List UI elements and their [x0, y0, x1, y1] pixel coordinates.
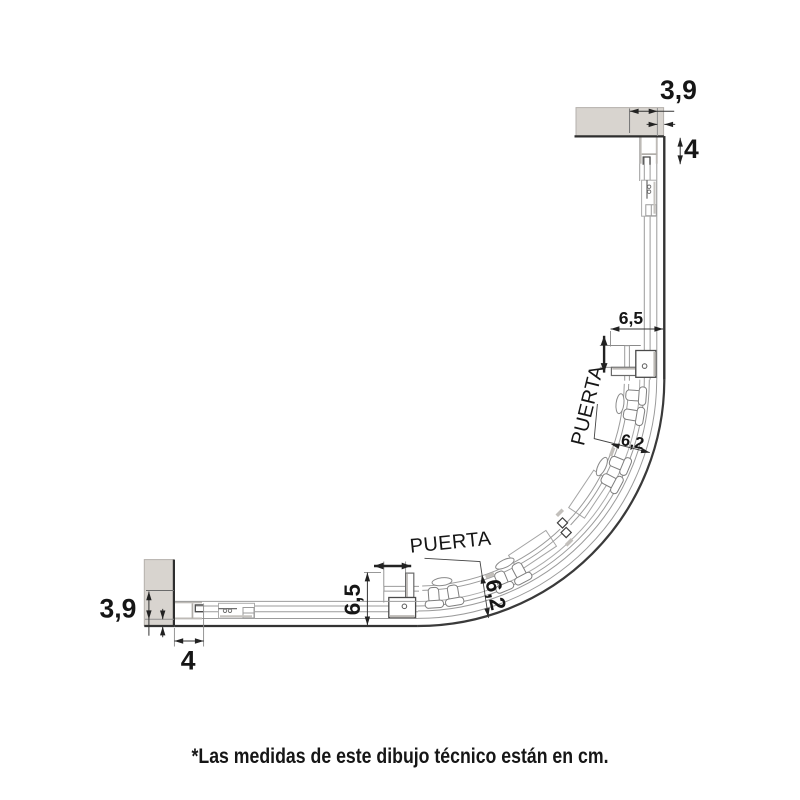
svg-text:4: 4	[181, 646, 196, 676]
svg-text:6,5: 6,5	[619, 308, 644, 328]
svg-text:3,9: 3,9	[100, 594, 137, 624]
svg-text:4: 4	[684, 134, 699, 164]
svg-text:*Las medidas de este dibujo té: *Las medidas de este dibujo técnico está…	[192, 745, 609, 768]
svg-text:6,5: 6,5	[340, 584, 365, 615]
svg-text:3,9: 3,9	[660, 75, 697, 105]
